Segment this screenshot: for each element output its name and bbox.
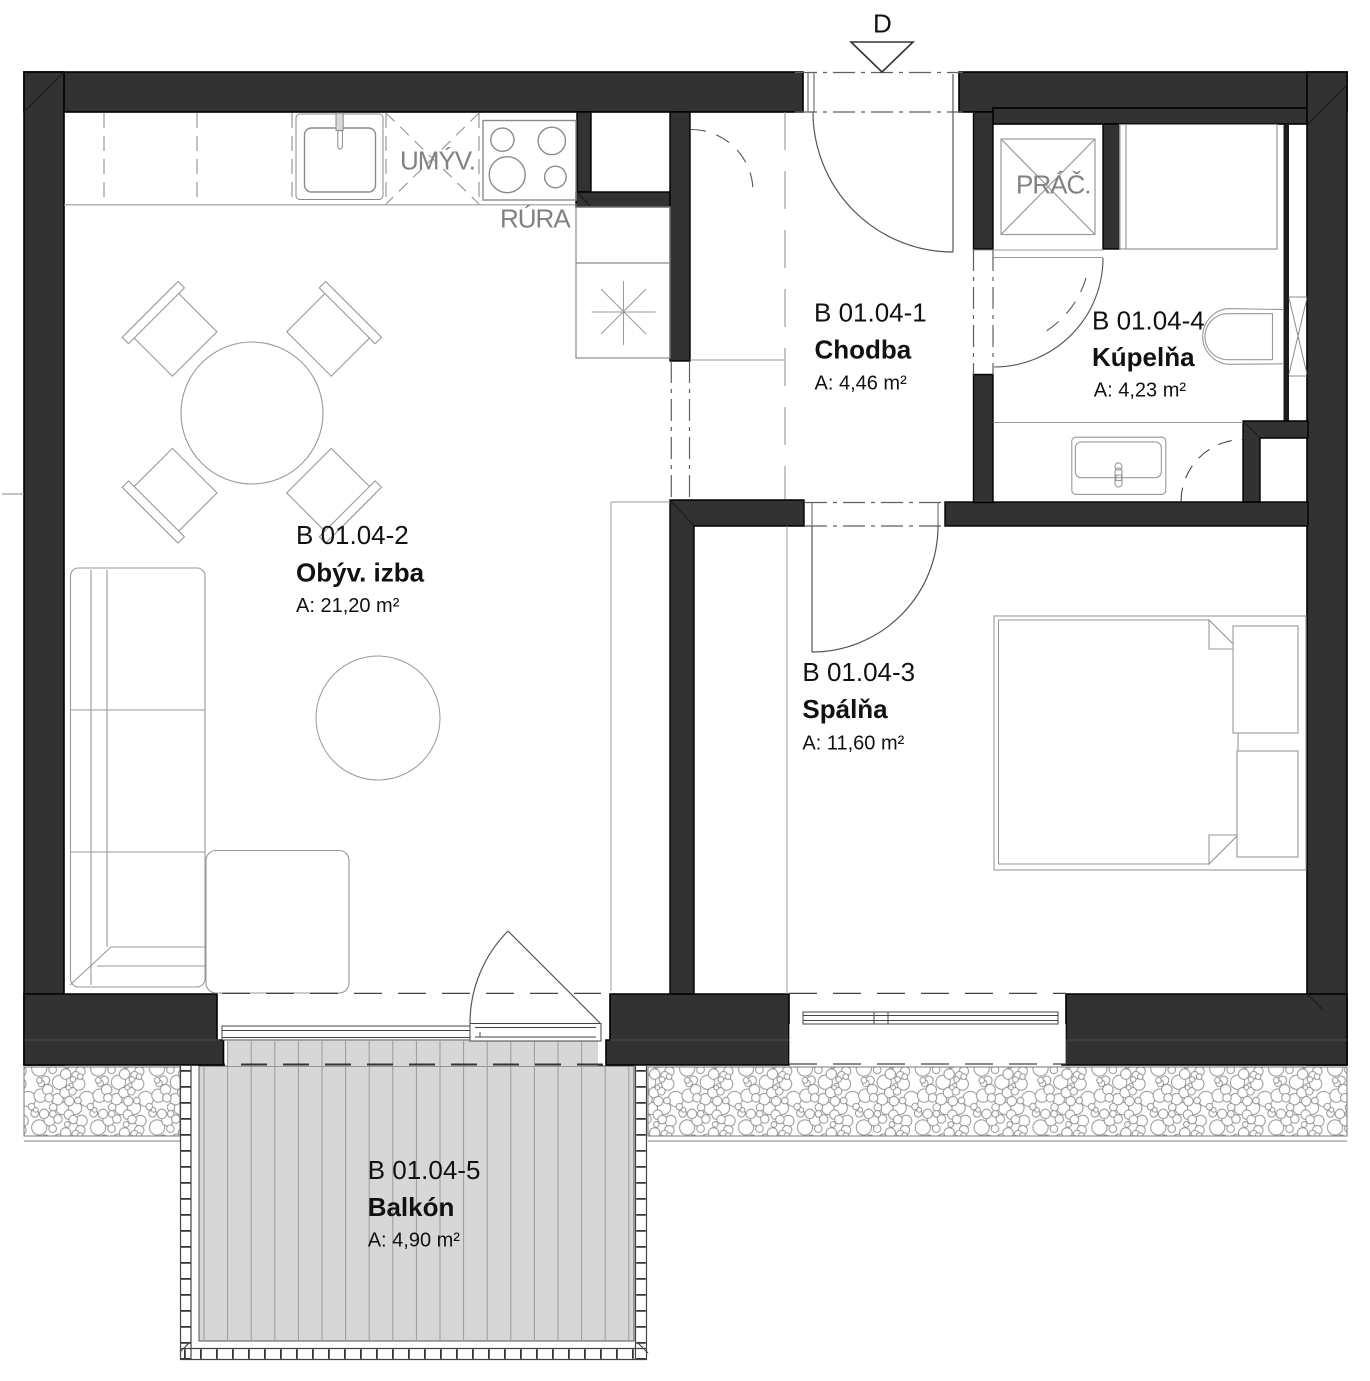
svg-text:A: 11,60 m²: A: 11,60 m² — [802, 733, 904, 755]
svg-text:RÚRA: RÚRA — [500, 204, 571, 234]
svg-text:Balkón: Balkón — [368, 1192, 455, 1222]
svg-text:D: D — [873, 9, 892, 39]
svg-text:Chodba: Chodba — [815, 334, 912, 364]
svg-text:UMÝV.: UMÝV. — [400, 146, 475, 176]
svg-text:A: 4,46 m²: A: 4,46 m² — [815, 372, 908, 394]
svg-text:A: 4,90 m²: A: 4,90 m² — [368, 1230, 461, 1252]
svg-text:Obýv. izba: Obýv. izba — [296, 557, 425, 587]
svg-text:A: 21,20 m²: A: 21,20 m² — [296, 595, 400, 617]
svg-text:PRÁČ.: PRÁČ. — [1016, 170, 1090, 200]
svg-text:B 01.04-3: B 01.04-3 — [802, 657, 915, 687]
svg-text:Spálňa: Spálňa — [802, 694, 888, 724]
svg-text:B 01.04-4: B 01.04-4 — [1092, 306, 1205, 336]
svg-text:A: 4,23 m²: A: 4,23 m² — [1094, 380, 1187, 402]
svg-text:Kúpelňa: Kúpelňa — [1092, 342, 1195, 372]
svg-text:B 01.04-2: B 01.04-2 — [296, 520, 409, 550]
svg-text:B 01.04-1: B 01.04-1 — [814, 298, 927, 328]
svg-text:B 01.04-5: B 01.04-5 — [368, 1155, 481, 1185]
